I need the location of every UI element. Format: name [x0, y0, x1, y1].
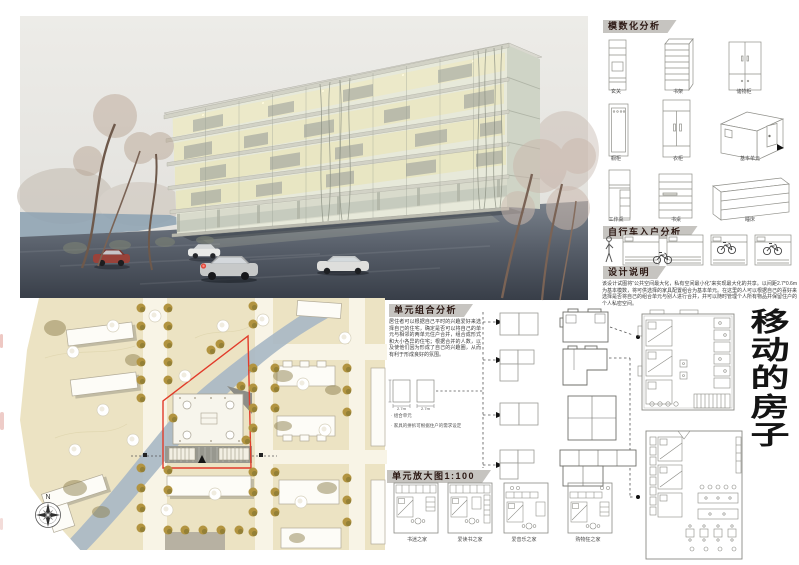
counters — [698, 493, 738, 519]
unit-panel-3 — [711, 235, 747, 265]
module-wardrobe — [663, 100, 690, 157]
person-icon — [606, 237, 613, 262]
bed-units — [646, 320, 672, 404]
module-storage-cabinet — [729, 42, 761, 90]
unit-plan-4 — [568, 483, 612, 533]
scan-artifact — [0, 334, 3, 348]
module-label: 基本单元 — [728, 156, 772, 162]
title-char: 动 — [727, 336, 799, 364]
unit-panel-2 — [667, 235, 703, 265]
furniture-modules-diagram — [601, 36, 797, 228]
unit-combination-title: 单元组合分析 — [394, 305, 457, 315]
combo-row3-blocks — [500, 403, 538, 425]
modular-analysis-header: 模数化分析 — [603, 20, 677, 33]
combo-row2-blocks — [500, 350, 534, 381]
unit-panel-4 — [755, 235, 791, 265]
deck-stripes — [694, 394, 730, 408]
modular-analysis-title: 模数化分析 — [608, 21, 661, 31]
unit-plan-label: 爱读书之家 — [440, 537, 500, 543]
combo-row3-plan — [568, 396, 616, 440]
module-label: 书架 — [658, 89, 698, 95]
module-label: 睡床 — [730, 217, 770, 223]
enlarged-unit-plans — [388, 482, 620, 536]
unit-plan-label: 书迷之家 — [387, 537, 447, 543]
combination-note-2: 家具的拼拆可根据住户的需求设定 — [391, 423, 477, 429]
module-label: 橱柜 — [596, 156, 636, 162]
unit-combination-paragraph: 居住者可以根据自己平时的兴趣爱好来选择自己的住宅，确定是否可以将自己的单元与相邻… — [389, 319, 481, 359]
combo-row1-blocks — [500, 313, 538, 335]
module-work-desk — [609, 170, 630, 220]
compass-north-label: N — [45, 494, 50, 501]
poster-title-vertical: 移 动 的 房 子 — [741, 308, 799, 449]
design-notes-header: 设计说明 — [603, 266, 666, 279]
scan-artifact — [0, 412, 4, 430]
module-label: 书桌 — [656, 217, 696, 223]
module-label: 工作桌 — [596, 217, 636, 223]
dimension-label: 2.7m — [397, 406, 407, 411]
bar-stools — [700, 485, 736, 489]
unit-enlarged-title: 单元放大图1:100 — [392, 471, 475, 481]
combo-row4-plan — [560, 450, 636, 486]
combo-row4-blocks — [500, 450, 534, 479]
unit-plan-2 — [448, 483, 492, 533]
title-char: 的 — [727, 364, 799, 392]
module-label: 玄关 — [596, 89, 636, 95]
combination-unit-diagram: 2.7m 2.7m — [388, 377, 488, 411]
unit-plan-1 — [394, 483, 438, 533]
tables — [686, 525, 736, 551]
module-label: 衣柜 — [658, 156, 698, 162]
building-rendering — [20, 16, 588, 300]
bed-units — [658, 437, 682, 517]
module-label: 储物柜 — [724, 89, 764, 95]
module-bed-shelf — [713, 178, 789, 220]
module-tall-cupboard — [609, 104, 628, 156]
paper-bottom — [15, 550, 387, 562]
title-char: 子 — [727, 421, 799, 449]
module-basic-unit-box — [721, 112, 784, 160]
bicycle-entry-diagram — [601, 233, 798, 269]
combination-note-1: 组合单元 — [391, 413, 471, 419]
title-char: 房 — [727, 393, 799, 421]
dimension-label: 2.7m — [421, 406, 431, 411]
title-char: 移 — [727, 308, 799, 336]
combo-row1-plan — [560, 309, 608, 342]
site-plan: N — [15, 298, 387, 562]
unit-plan-3 — [504, 483, 548, 533]
unit-plan-label: 爱音乐之家 — [494, 537, 554, 543]
design-notes-title: 设计说明 — [608, 267, 650, 277]
unit-plan-label: 购物狂之家 — [558, 537, 618, 543]
combo-row2-plan — [563, 346, 607, 385]
module-entry-cabinet — [609, 40, 626, 90]
module-bookshelf — [665, 39, 693, 90]
module-desk-shelf — [659, 174, 692, 218]
presentation-board: N 模数化分析 — [0, 0, 799, 565]
scan-artifact — [0, 518, 3, 530]
unit-combination-header: 单元组合分析 — [389, 304, 473, 317]
closet-strip — [650, 437, 656, 515]
